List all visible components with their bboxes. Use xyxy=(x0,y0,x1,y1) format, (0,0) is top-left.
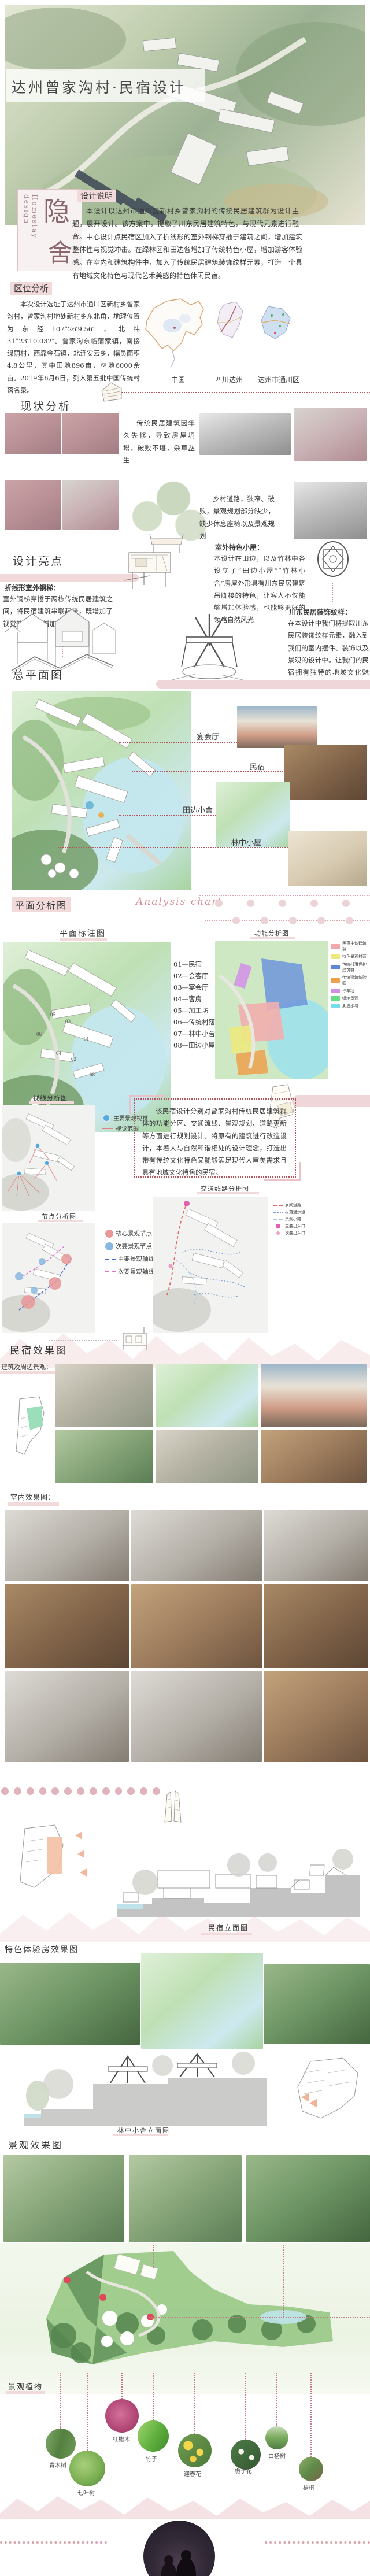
legend-label: 传统建筑体验区 xyxy=(342,975,370,986)
renderings-heading: 民宿效果图 xyxy=(10,1342,68,1357)
callout-label-homestay: 民宿 xyxy=(250,761,265,772)
elevation-keyplan xyxy=(14,1824,70,1889)
photo-garden-path-flowers xyxy=(55,1430,153,1483)
highlight-1-title: 折线形室外钢梯： xyxy=(5,583,60,593)
photo-forest-seating-circle xyxy=(129,2155,242,2242)
photo-aframe-bamboo xyxy=(0,1963,140,2045)
legend-label: 次要出入口 xyxy=(285,1230,305,1236)
village-walk-line-icon xyxy=(273,1212,283,1213)
legend-label: 传统村落保护建筑群 xyxy=(342,961,370,973)
footer-dotted-left xyxy=(0,2541,107,2544)
map-label-sichuan-dazhou: 四川达州 xyxy=(215,375,243,384)
core-node-icon xyxy=(105,1230,113,1238)
homestay-elevation-drawing xyxy=(117,1848,360,1917)
surroundings-label: 建筑及周边景观： xyxy=(1,1362,52,1371)
zigzag-decor-band-3 xyxy=(0,2493,370,2519)
photo-interior-corridor xyxy=(5,1671,129,1762)
plant-photo-qingmushu xyxy=(46,2429,76,2459)
plants-heading: 景观植物 xyxy=(8,2381,43,2392)
tower-sketch-icon xyxy=(160,1789,184,1823)
map-label-tongchuan: 达州市通川区 xyxy=(258,375,299,384)
photo-interior-wood-lounge xyxy=(131,1584,262,1668)
traffic-title-underline xyxy=(197,1192,259,1194)
legend-label: 民宿主体建筑群 xyxy=(342,941,370,952)
node-legend: 核心景观节点 次要景观节点 主要景观轴线 次要景观轴线 xyxy=(105,1229,154,1276)
photo-wood-corridor xyxy=(261,1430,367,1483)
sight-title-underline xyxy=(29,1101,74,1104)
node-title-underline xyxy=(38,1220,83,1222)
photo-couple-night xyxy=(143,2521,215,2576)
photo-banquet-hall xyxy=(237,706,317,748)
svg-text:03: 03 xyxy=(65,1019,71,1024)
highlights-accent-band xyxy=(0,574,139,582)
photo-village-path xyxy=(62,480,119,530)
plan-analysis-section: 平面分析图 xyxy=(12,897,71,912)
legend-label: 特色景观村落 xyxy=(342,954,367,960)
tongchuan-district-map xyxy=(258,303,294,342)
plant-label: 红檵木 xyxy=(113,2434,130,2443)
masterplan-accent-band xyxy=(156,680,370,689)
photo-interior-lounge xyxy=(264,1510,368,1581)
direction-arrow xyxy=(77,1850,84,1858)
function-zoning-plan xyxy=(215,941,328,1079)
photo-interior-wood-bedroom xyxy=(5,1584,129,1668)
plants-underline xyxy=(6,2391,45,2394)
divider-dotted-small xyxy=(49,1340,117,1341)
legend-label: 村落漫步道 xyxy=(285,1209,305,1215)
legend-label: 次要景观轴线 xyxy=(118,1267,154,1276)
analysis-dot-row-2 xyxy=(232,917,370,924)
photo-old-building-2 xyxy=(62,413,119,454)
callout-label-field-cottage: 田边小舍 xyxy=(183,804,213,815)
annotation-title-underline xyxy=(60,938,107,941)
legend-label: 停车场 xyxy=(342,988,354,994)
homestay-elevation-underline xyxy=(201,1933,252,1935)
annotation-plan-title: 平面标注图 xyxy=(60,927,106,939)
brand-char-bottom: 舍 xyxy=(48,234,72,269)
status-note-1: 传统民居建筑因年久失修，导致房屋坍塌，破败不堪，杂草丛生 xyxy=(123,417,195,467)
homestay-elevation-caption: 民宿立面图 xyxy=(208,1923,249,1933)
plan-analysis-summary: 该民宿设计分别对曾家沟村传统民居建筑群体的功能分区、交通流线、景观规划、道路更新… xyxy=(142,1105,287,1179)
aframe-structure-sketch xyxy=(161,612,258,688)
plant-label: 竹子 xyxy=(146,2454,157,2463)
legend-label: 绿地景观 xyxy=(342,995,358,1001)
status-note-2: 乡村道路，狭窄、破败，景观规划部分缺少，缺少休息座椅以及景观规划 xyxy=(199,493,275,542)
direction-arrow xyxy=(75,1831,82,1840)
photo-interior-balcony-bedroom xyxy=(264,1584,368,1668)
plant-label: 青木树 xyxy=(49,2460,66,2469)
legend-label: 次要景观节点 xyxy=(116,1242,152,1250)
callout-line-banquet xyxy=(119,742,237,743)
cabin-elevation-underline xyxy=(113,2134,168,2136)
main-entrance-dot-icon xyxy=(276,1224,280,1228)
cabin-keyplan xyxy=(293,2056,364,2120)
small-cabin-sketch-icon xyxy=(119,1325,151,1352)
plant-leader-7 xyxy=(276,2373,277,2426)
plan-analysis-heading: 平面分析图 xyxy=(12,897,71,912)
photo-interior-dining-room xyxy=(131,1671,262,1762)
function-legend: 民宿主体建筑群 特色景观村落 传统村落保护建筑群 传统建筑体验区 停车场 绿地景… xyxy=(331,941,370,1009)
location-heading: 区位分析 xyxy=(10,282,52,295)
analysis-dotted-line-1 xyxy=(199,895,370,896)
landscape-leader-h xyxy=(149,2317,370,2318)
legend-label: 核心景观节点 xyxy=(116,1229,152,1238)
section-divider-dotted xyxy=(102,392,370,393)
secondary-node-icon xyxy=(105,1242,113,1250)
landscape-leader-v1 xyxy=(153,2245,154,2268)
node-analysis-plan xyxy=(2,1223,95,1333)
photo-white-building-lanterns xyxy=(261,1364,367,1427)
interior-label: 室内效果图： xyxy=(10,1492,55,1502)
brand-char-top: 隐 xyxy=(43,191,70,229)
photo-courtyard-pool xyxy=(55,1364,153,1427)
main-view-dot-icon xyxy=(102,1114,110,1122)
photo-village-roofs-pavilion xyxy=(156,1364,258,1427)
plant-label: 迎春花 xyxy=(184,2469,201,2478)
landscape-plan xyxy=(40,2249,336,2373)
location-section: 区位分析 xyxy=(10,282,52,295)
design-note-paragraph-2: 中心设计点民宿区加入了折线形的室外钢梯穿插于建筑之间，增加建筑整体性与视觉冲击。… xyxy=(72,231,302,282)
plant-photo-wutong xyxy=(299,2457,323,2481)
legend-label: 乡间道路 xyxy=(285,1202,301,1208)
summary-box: 该民宿设计分别对曾家沟村传统民居建筑群体的功能分区、交通流线、景观规划、道路更新… xyxy=(134,1098,296,1178)
plant-label: 白杨树 xyxy=(268,2451,286,2460)
photo-village-road-bw xyxy=(294,482,367,539)
cabin-sketch xyxy=(119,545,176,594)
secondary-axis-line-icon xyxy=(105,1271,116,1272)
experience-heading: 特色体验房效果图 xyxy=(5,1944,79,1955)
plant-leader-8 xyxy=(310,2373,312,2457)
poster-title: 达州曾家沟村·民宿设计 xyxy=(6,69,205,97)
highlight-3-leader-line xyxy=(332,583,333,602)
callout-label-banquet: 宴会厅 xyxy=(197,731,219,742)
photo-valley-bw xyxy=(199,413,291,455)
highlights-heading: 设计亮点 xyxy=(13,553,64,568)
china-map xyxy=(139,291,205,371)
sichuan-dazhou-map xyxy=(213,299,246,341)
photo-interior-living-stair xyxy=(131,1510,262,1581)
design-note-heading: 设计说明 xyxy=(77,190,116,202)
plant-photo-yingchunhua xyxy=(178,2434,212,2467)
legend-label: 湖泊水域 xyxy=(342,1003,358,1009)
status-heading: 现状分析 xyxy=(20,398,71,413)
highlight-3-title: 川东民居装饰纹样： xyxy=(289,607,351,617)
view-range-line-icon xyxy=(102,1128,113,1129)
plant-leader-1 xyxy=(60,2373,61,2429)
plant-photo-hongjimu xyxy=(105,2399,139,2433)
keyplan-green-zone xyxy=(13,1396,47,1457)
photo-forest-bench-path xyxy=(246,2155,370,2242)
plant-label: 栀子花 xyxy=(235,2466,252,2475)
plant-leader-6 xyxy=(245,2373,246,2440)
svg-text:02: 02 xyxy=(71,1056,76,1062)
poster-root: 达州曾家沟村·民宿设计 Homestay design 隐 舍 设计说明 本设计… xyxy=(0,0,370,2576)
surroundings-underline xyxy=(0,1371,55,1374)
photo-village-lotus-aerial xyxy=(141,1953,263,2049)
country-road-line-icon xyxy=(273,1205,283,1206)
design-note-section: 设计说明 xyxy=(77,190,116,202)
masterplan-site-plan xyxy=(12,691,191,890)
footer-dotted-right xyxy=(265,2541,370,2544)
svg-text:06: 06 xyxy=(36,1031,42,1037)
map-label-china: 中国 xyxy=(171,375,185,384)
plant-photo-zhizihua xyxy=(231,2440,261,2470)
analysis-accent-band xyxy=(292,1095,370,1107)
traffic-analysis-plan xyxy=(153,1197,268,1333)
svg-text:05: 05 xyxy=(50,1012,56,1017)
photo-old-building-1 xyxy=(5,413,61,454)
direction-arrow xyxy=(80,1868,87,1877)
plant-photo-zhuzi xyxy=(138,2420,169,2452)
decor-dot-row xyxy=(1,1787,160,1795)
photo-forest-cabin xyxy=(288,831,367,886)
plant-photo-qiyeshu xyxy=(69,2451,105,2486)
secondary-entrance-dot-icon xyxy=(276,1231,280,1235)
pattern-medallion-icon xyxy=(317,541,349,581)
landscape-leader-v2 xyxy=(283,2245,284,2317)
legend-label: 景观小路 xyxy=(285,1216,301,1222)
traffic-legend: 乡间道路 村落漫步道 景观小路 主要出入口 次要出入口 xyxy=(273,1202,305,1236)
plant-leader-4 xyxy=(153,2373,154,2420)
brand-english-vertical: Homestay design xyxy=(23,194,39,266)
house-sketch-icon xyxy=(98,379,124,405)
photo-forest-deck-path xyxy=(3,2155,124,2242)
plant-label: 七叶树 xyxy=(77,2488,95,2497)
svg-text:01: 01 xyxy=(84,1036,89,1042)
analysis-dot-row-1 xyxy=(215,900,370,907)
highlight-2-title: 室外特色小屋： xyxy=(215,542,264,552)
plant-photo-baiyangshu xyxy=(265,2426,288,2449)
photo-homestay-building xyxy=(284,745,367,800)
sight-legend-2: 视觉范围 xyxy=(102,1124,139,1132)
analysis-chart-label: Analysis chart xyxy=(136,896,223,908)
plant-leader-5 xyxy=(194,2373,195,2434)
plant-leader-2 xyxy=(87,2373,88,2451)
photo-interior-restaurant xyxy=(264,1671,368,1762)
photo-stone-steps xyxy=(156,1430,258,1483)
landscape-heading: 景观效果图 xyxy=(8,2137,63,2151)
sight-analysis-plan xyxy=(2,1105,95,1211)
main-axis-line-icon xyxy=(105,1259,116,1260)
callout-label-forest-cabin: 林中小屋 xyxy=(231,837,261,847)
svg-text:04: 04 xyxy=(56,1050,62,1056)
svg-text:08: 08 xyxy=(90,1072,95,1078)
scenic-path-line-icon xyxy=(273,1219,283,1220)
plant-label: 梧桐 xyxy=(303,2483,314,2492)
photo-old-barn xyxy=(5,480,61,530)
cabin-elevation-drawing xyxy=(24,2049,267,2126)
masterplan-heading: 总平面图 xyxy=(13,667,64,682)
photo-interior-bedroom-canopy xyxy=(5,1510,129,1581)
interior-underline xyxy=(8,1502,59,1506)
photo-village-street xyxy=(294,408,367,461)
legend-label: 主要出入口 xyxy=(285,1223,305,1229)
title-banner: 达州曾家沟村·民宿设计 xyxy=(6,69,205,102)
photo-treehouse-forest xyxy=(264,1964,370,2044)
legend-label: 主要景观轴线 xyxy=(118,1254,154,1263)
function-title-underline xyxy=(250,937,295,939)
plant-leader-3 xyxy=(121,2373,123,2399)
